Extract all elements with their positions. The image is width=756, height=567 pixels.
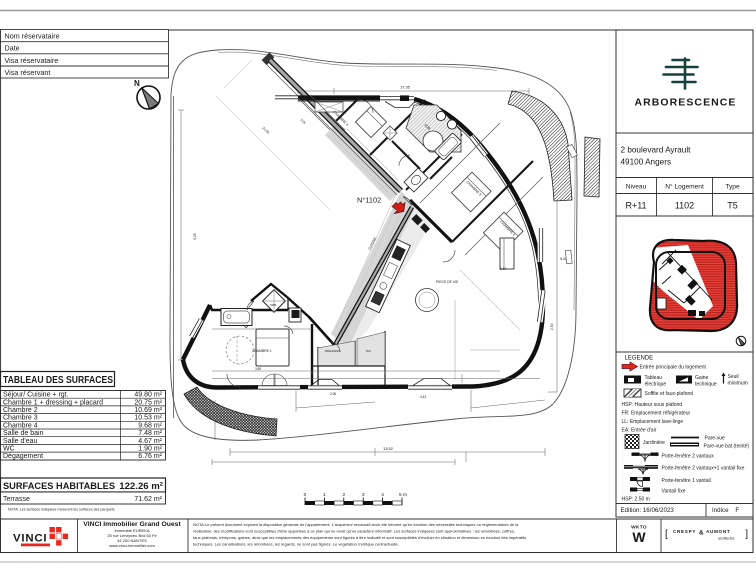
svg-text:Salle d'eau: Salle d'eau xyxy=(3,438,38,445)
svg-text:NOTA:Le présent document expir: NOTA:Le présent document expirant la dis… xyxy=(193,522,519,527)
svg-text:Salle de bain: Salle de bain xyxy=(3,430,44,437)
svg-text:PIECE DE VIE: PIECE DE VIE xyxy=(436,280,459,284)
svg-text:0: 0 xyxy=(304,492,307,498)
svg-text:1102: 1102 xyxy=(675,201,694,211)
svg-text:Chambre 1 + dressing + placard: Chambre 1 + dressing + placard xyxy=(3,399,103,406)
svg-text:122.26 m²: 122.26 m² xyxy=(119,481,163,492)
svg-text:3.60: 3.60 xyxy=(255,367,261,371)
svg-text:71.62 m²: 71.62 m² xyxy=(134,496,162,503)
svg-text:technique: technique xyxy=(695,382,717,388)
svg-text:2.60: 2.60 xyxy=(550,323,554,330)
svg-text:13.52: 13.52 xyxy=(383,446,394,451)
svg-text:49100 Angers: 49100 Angers xyxy=(621,158,672,167)
svg-text:2.05: 2.05 xyxy=(330,392,336,396)
svg-text:2 boulevard Ayrault: 2 boulevard Ayrault xyxy=(621,146,692,155)
svg-text:&: & xyxy=(699,530,704,537)
svg-text:Entrée principale du logement: Entrée principale du logement xyxy=(640,365,707,371)
svg-text:Séjour/ Cuisine + rgt.: Séjour/ Cuisine + rgt. xyxy=(3,392,69,399)
svg-text:10.69 m²: 10.69 m² xyxy=(134,407,162,414)
svg-text:WC: WC xyxy=(366,349,372,353)
svg-text:AUMONT: AUMONT xyxy=(706,529,730,534)
svg-text:5 m: 5 m xyxy=(399,492,407,498)
svg-text:4.43: 4.43 xyxy=(420,395,426,399)
svg-text:20.75 m²: 20.75 m² xyxy=(134,399,162,406)
svg-text:10.53 m²: 10.53 m² xyxy=(134,415,162,422)
svg-text:Jardinière: Jardinière xyxy=(643,440,665,446)
svg-text:Visa réservataire: Visa réservataire xyxy=(5,56,59,65)
svg-text:électrique: électrique xyxy=(645,382,667,388)
svg-text:R+11: R+11 xyxy=(625,201,646,211)
svg-text:ARBORESCENCE: ARBORESCENCE xyxy=(635,98,737,109)
svg-text:Porte-fenêtre 2 vantaux+1 vant: Porte-fenêtre 2 vantaux+1 vantail fixe xyxy=(662,466,745,472)
svg-text:Tableau: Tableau xyxy=(645,375,663,381)
svg-text:CHAMBRE 1: CHAMBRE 1 xyxy=(252,349,272,353)
svg-text:Date: Date xyxy=(5,44,20,53)
svg-text:Terrasse: Terrasse xyxy=(3,496,30,503)
svg-text:4.25: 4.25 xyxy=(193,233,197,240)
svg-text:17.35: 17.35 xyxy=(400,85,411,90)
svg-text:Pare-vue: Pare-vue xyxy=(705,436,726,442)
svg-text:Chambre 3: Chambre 3 xyxy=(3,415,38,422)
svg-text:DRESSING: DRESSING xyxy=(325,349,341,353)
svg-text:VINCI Immobilier Grand Ouest: VINCI Immobilier Grand Ouest xyxy=(83,521,181,528)
svg-text:6.76 m²: 6.76 m² xyxy=(138,453,162,460)
svg-text:HSP: Hauteur sous plafond: HSP: Hauteur sous plafond xyxy=(622,402,683,408)
svg-text:CRESPY: CRESPY xyxy=(673,529,696,534)
svg-text:LL: Emplacement lave-linge: LL: Emplacement lave-linge xyxy=(622,419,684,425)
svg-text:Visa réservant: Visa réservant xyxy=(5,68,51,77)
svg-text:Dégagement: Dégagement xyxy=(3,453,43,460)
svg-text:Gaine: Gaine xyxy=(695,375,709,381)
svg-text:WC: WC xyxy=(3,446,15,453)
svg-text:2: 2 xyxy=(342,492,345,498)
svg-text:LEGENDE: LEGENDE xyxy=(625,356,654,362)
svg-text:Vantail fixe: Vantail fixe xyxy=(662,489,686,495)
svg-text:FR: Emplacement réfrigérateur: FR: Emplacement réfrigérateur xyxy=(622,411,691,417)
svg-text:Nom réservataire: Nom réservataire xyxy=(5,32,60,41)
svg-text:N: N xyxy=(134,79,140,88)
svg-text:TABLEAU DES SURFACES: TABLEAU DES SURFACES xyxy=(3,375,113,386)
svg-text:Pare-vue bat (teinté): Pare-vue bat (teinté) xyxy=(704,444,750,450)
svg-text:3: 3 xyxy=(362,492,365,498)
svg-text:Niveau: Niveau xyxy=(626,184,647,191)
svg-text:minimum: minimum xyxy=(728,381,748,387)
svg-text:]: ] xyxy=(745,529,748,540)
svg-text:Seuil: Seuil xyxy=(728,374,739,380)
svg-text:HSP: 2.50 m: HSP: 2.50 m xyxy=(622,497,650,503)
svg-text:9.68 m²: 9.68 m² xyxy=(138,422,162,429)
svg-text:architectes: architectes xyxy=(718,537,735,541)
svg-text:EA: Entrée d'air: EA: Entrée d'air xyxy=(622,428,657,434)
svg-text:1.94: 1.94 xyxy=(500,267,506,271)
svg-text:7.48 m²: 7.48 m² xyxy=(138,430,162,437)
svg-text:[: [ xyxy=(665,529,668,540)
svg-text:www.vinci-immobilier.com: www.vinci-immobilier.com xyxy=(109,543,155,548)
svg-text:N°1102: N°1102 xyxy=(357,196,381,205)
svg-text:W: W xyxy=(632,529,646,545)
svg-text:faux-plafonds, trémpons, gaine: faux-plafonds, trémpons, gaines, ainsi q… xyxy=(193,535,526,540)
svg-text:Chambre 4: Chambre 4 xyxy=(3,422,38,429)
svg-text:SDB: SDB xyxy=(270,303,276,307)
svg-text:Indice F: Indice F xyxy=(712,507,739,514)
svg-text:NOTA: Les surfaces indiquées m: NOTA: Les surfaces indiquées mesurent le… xyxy=(8,508,115,512)
svg-text:SURFACES HABITABLES: SURFACES HABITABLES xyxy=(3,480,115,491)
svg-text:Porte-fenêtre 1 vantail: Porte-fenêtre 1 vantail xyxy=(662,478,711,484)
svg-text:1.90 m²: 1.90 m² xyxy=(138,446,162,453)
svg-text:Porte-fenêtre 2 vantaux: Porte-fenêtre 2 vantaux xyxy=(662,454,715,460)
svg-text:Chambre 2: Chambre 2 xyxy=(3,407,38,414)
svg-text:49.80 m²: 49.80 m² xyxy=(134,392,162,399)
svg-text:4.67 m²: 4.67 m² xyxy=(138,438,162,445)
svg-text:VINCI: VINCI xyxy=(13,533,47,545)
svg-text:Edition: 16/06/2023: Edition: 16/06/2023 xyxy=(621,507,675,514)
svg-text:techniques. Les canalisations,: techniques. Les canalisations, les retom… xyxy=(193,542,399,547)
svg-text:Soffite et faux-plafond: Soffite et faux-plafond xyxy=(645,391,694,397)
svg-text:Type: Type xyxy=(725,184,740,191)
svg-text:4: 4 xyxy=(381,492,384,498)
svg-text:T5: T5 xyxy=(727,201,738,211)
svg-text:N° Logement: N° Logement xyxy=(665,183,704,191)
svg-text:1: 1 xyxy=(323,492,326,498)
svg-text:réalisation, des modifications: réalisation, des modifications sont susc… xyxy=(193,529,515,534)
